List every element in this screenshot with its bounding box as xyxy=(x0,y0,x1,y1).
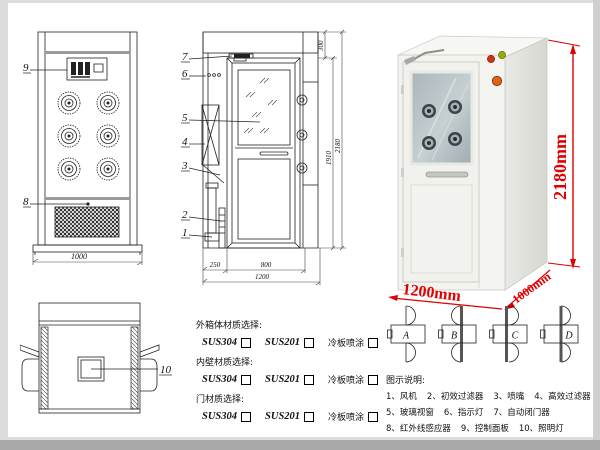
svg-text:A: A xyxy=(402,331,410,342)
legend-item: 6、指示灯 xyxy=(444,406,483,418)
material-group-outer-box: 外箱体材质选择: SUS304 SUS201 冷板喷涂 xyxy=(196,318,381,349)
option-label: SUS304 xyxy=(202,337,237,348)
dim-2180mm: 2180mm xyxy=(550,134,570,200)
front-width-dimension: 1000 xyxy=(33,252,142,265)
checkbox xyxy=(368,375,378,385)
legend-item: 4、高效过滤器 xyxy=(534,390,590,402)
door-glass-window xyxy=(411,72,472,164)
material-group-door: 门材质选择: SUS304 SUS201 冷板喷涂 xyxy=(196,392,381,423)
legend-item: 7、自动闭门器 xyxy=(493,406,549,418)
dim-250: 250 xyxy=(210,261,221,269)
grille-band xyxy=(45,197,130,200)
callout-7: 7 xyxy=(182,51,188,63)
glass-window xyxy=(238,70,290,145)
option-label: SUS304 xyxy=(202,374,237,385)
callout-5: 5 xyxy=(182,112,188,124)
door-assembly xyxy=(227,54,300,248)
legend: 图示说明: 1、风机 2、初效过滤器 3、喷嘴 4、高效过滤器 5、玻璃视窗 6… xyxy=(386,373,598,434)
option-label: 冷板喷涂 xyxy=(328,336,364,349)
callout-3: 3 xyxy=(181,160,188,172)
legend-item: 9、控制面板 xyxy=(461,422,509,434)
checkbox xyxy=(241,338,251,348)
emergency-button xyxy=(492,76,501,85)
door-lower-panel xyxy=(238,159,290,239)
checkbox xyxy=(304,338,314,348)
height-dimensions: 300 1910 2180 xyxy=(317,30,346,250)
legend-item: 2、初效过滤器 xyxy=(427,390,483,402)
cabinet-door xyxy=(401,50,479,282)
option-label: SUS201 xyxy=(265,374,300,385)
checkbox xyxy=(368,338,378,348)
checkbox xyxy=(368,412,378,422)
front-nozzles xyxy=(58,92,119,180)
air-return-grille xyxy=(55,207,119,237)
page-bottom-bar xyxy=(0,440,600,450)
material-selection: 外箱体材质选择: SUS304 SUS201 冷板喷涂 内壁材质选择: SUS3… xyxy=(196,318,381,429)
door-configurations: A B C D xyxy=(386,303,586,365)
door-config-b: B xyxy=(437,303,483,365)
callout-4: 4 xyxy=(182,136,188,148)
checkbox xyxy=(304,412,314,422)
glass-hatch-marks xyxy=(244,78,277,133)
callout-10: 10 xyxy=(160,364,172,376)
dim-300: 300 xyxy=(317,40,325,52)
material-group-title: 内壁材质选择: xyxy=(196,355,381,368)
left-wall-fan-unit xyxy=(202,32,225,248)
option-label: SUS201 xyxy=(265,411,300,422)
option-label: 冷板喷涂 xyxy=(328,410,364,423)
width-dimensions: 250 800 1200 xyxy=(203,248,320,285)
green-indicator xyxy=(498,51,505,58)
top-view-drawing: 10 xyxy=(20,295,180,430)
right-wall-nozzles xyxy=(203,32,318,248)
callout-9: 9 xyxy=(23,62,29,74)
svg-text:D: D xyxy=(564,331,573,342)
material-group-title: 外箱体材质选择: xyxy=(196,318,381,331)
door-config-d: D xyxy=(539,303,585,365)
door-closer xyxy=(234,54,250,58)
svg-text:B: B xyxy=(451,331,457,342)
svg-text:C: C xyxy=(512,331,519,342)
door-config-c: C xyxy=(488,303,534,365)
air-shower-datasheet: 9 8 1000 xyxy=(0,0,600,450)
dim-1200: 1200 xyxy=(255,273,270,281)
side-view-drawing: 7 6 5 4 3 2 1 300 1910 xyxy=(172,25,357,290)
material-group-inner-wall: 内壁材质选择: SUS304 SUS201 冷板喷涂 xyxy=(196,355,381,386)
product-photo: 2180mm 1200mm 1000mm xyxy=(380,10,595,310)
callout-2: 2 xyxy=(182,209,188,221)
material-group-title: 门材质选择: xyxy=(196,392,381,405)
dim-1000: 1000 xyxy=(71,252,87,261)
legend-item: 5、玻璃视窗 xyxy=(386,406,434,418)
door-handle xyxy=(260,152,288,155)
dim-1910: 1910 xyxy=(325,151,333,166)
legend-item: 8、红外线感应器 xyxy=(386,422,451,434)
callout-8: 8 xyxy=(23,196,29,208)
legend-item: 10、照明灯 xyxy=(519,422,564,434)
option-label: SUS201 xyxy=(265,337,300,348)
top-view-body xyxy=(39,303,140,413)
door-handle-photo xyxy=(426,172,468,177)
legend-item: 3、喷嘴 xyxy=(493,390,524,402)
door-config-a: A xyxy=(386,303,432,365)
option-label: 冷板喷涂 xyxy=(328,373,364,386)
front-base xyxy=(33,245,142,255)
checkbox xyxy=(304,375,314,385)
checkbox xyxy=(241,375,251,385)
callout-6: 6 xyxy=(182,68,188,80)
option-label: SUS304 xyxy=(202,411,237,422)
dim-2180: 2180 xyxy=(334,139,342,154)
front-view-drawing: 9 8 1000 xyxy=(20,25,160,275)
control-panel xyxy=(67,58,107,80)
red-indicator xyxy=(487,55,494,62)
checkbox xyxy=(241,412,251,422)
dim-800: 800 xyxy=(261,261,272,269)
page-right-edge xyxy=(593,0,600,450)
callout-1: 1 xyxy=(182,227,188,239)
legend-item: 1、风机 xyxy=(386,390,417,402)
legend-title: 图示说明: xyxy=(386,373,598,386)
legend-items: 1、风机 2、初效过滤器 3、喷嘴 4、高效过滤器 5、玻璃视窗 6、指示灯 7… xyxy=(386,390,598,434)
